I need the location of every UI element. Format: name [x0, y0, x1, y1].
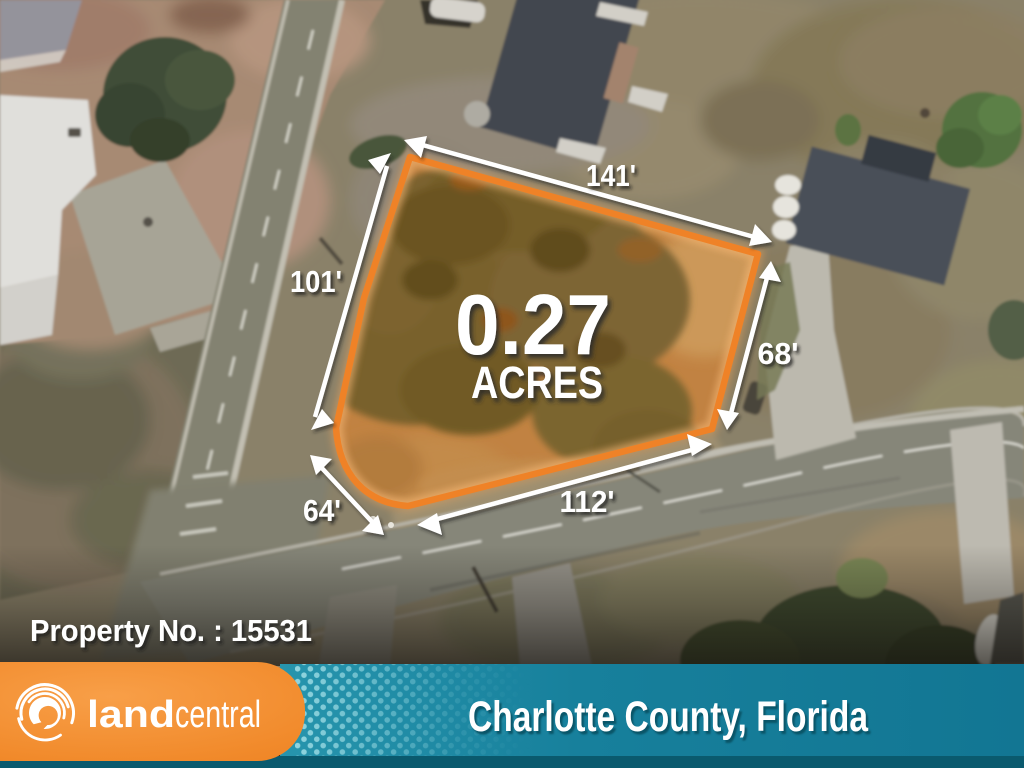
svg-text:central: central [175, 694, 261, 736]
svg-text:ACRES: ACRES [471, 357, 603, 408]
svg-text:land: land [87, 694, 175, 736]
svg-text:112': 112' [560, 484, 615, 519]
svg-text:141': 141' [586, 158, 636, 193]
svg-text:Charlotte County, Florida: Charlotte County, Florida [468, 693, 869, 741]
svg-text:64': 64' [303, 493, 341, 528]
svg-text:Property No. : 15531: Property No. : 15531 [30, 613, 312, 648]
svg-text:68': 68' [758, 336, 799, 371]
svg-text:101': 101' [290, 264, 342, 299]
